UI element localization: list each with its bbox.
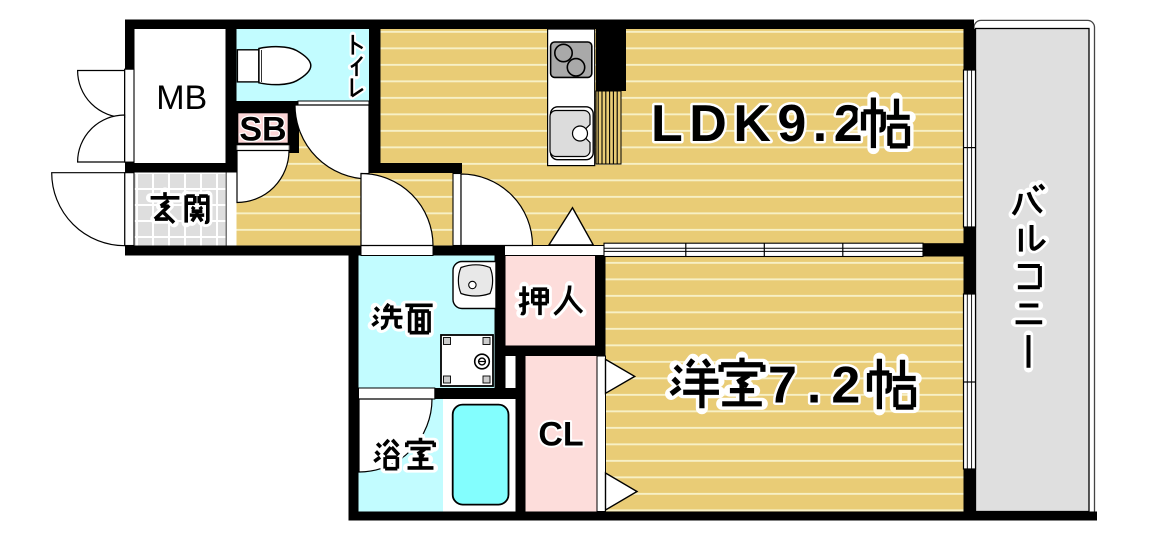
svg-text:CL: CL <box>538 416 583 454</box>
svg-text:MB: MB <box>156 79 207 117</box>
svg-text:SB: SB <box>239 111 286 149</box>
svg-text:7.2: 7.2 <box>768 357 870 415</box>
svg-text:LDK9.2: LDK9.2 <box>651 95 869 153</box>
